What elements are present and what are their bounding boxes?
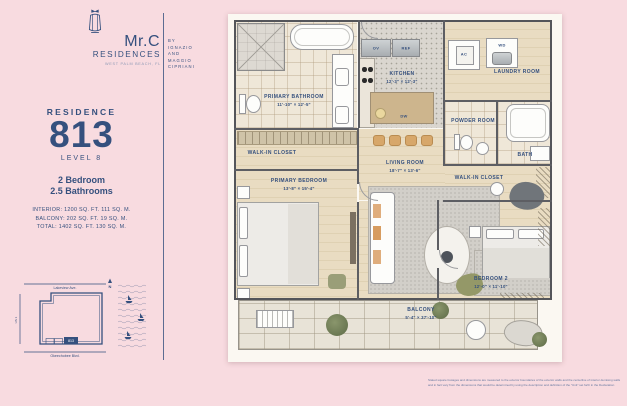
label-walkin-right: WALK-IN CLOSET [454,175,504,182]
sailboat-icon [125,295,145,339]
residence-number: 813 [0,114,163,156]
label-living: LIVING ROOM 18'-7" × 13'-6" [355,160,455,173]
north-label: N [109,284,112,289]
label-bedroom-2: BEDROOM 2 12'-0" × 11'-10" [451,276,531,289]
brand-byline: BY IGNAZIO AND MAGGIO CIPRIANI [168,38,195,71]
street-left-label: US 1 [14,316,18,323]
street-top-label: Lakeview Ave. [54,286,77,290]
byline-line: MAGGIO [168,58,195,65]
north-arrow-icon [108,279,112,284]
legal-disclaimer: Stated square footages and dimensions ar… [428,378,622,388]
label-powder: POWDER ROOM [451,118,495,125]
label-dishwasher: DW [400,114,407,119]
bathroom-count: 2.5 Bathrooms [0,186,163,196]
label-kitchen: KITCHEN 12'-3" × 12'-3" [362,71,442,84]
planter [532,332,547,347]
residence-level: LEVEL 8 [0,155,163,162]
planter [326,314,348,336]
label-walkin-left: WALK-IN CLOSET [246,150,298,157]
label-bath: BATH [505,152,545,159]
label-oven: OV [373,46,379,51]
byline-line: BY [168,38,195,45]
floor-plan: PRIMARY BATHROOM 11'-10" × 12'-5" WALK-I… [228,14,562,362]
bowtie-figure-icon [85,7,105,34]
floorplan-brochure-page: Mr.C RESIDENCES WEST PALM BEACH, FL BY I… [0,0,627,406]
label-primary-bathroom: PRIMARY BATHROOM 11'-10" × 12'-5" [259,94,329,107]
label-laundry: LAUNDRY ROOM [494,69,540,76]
brand-location: WEST PALM BEACH, FL [20,62,161,66]
label-refrigerator: REF [402,46,411,51]
lounge-chair [256,310,294,328]
area-interior: INTERIOR: 1200 SQ. FT. 111 SQ. M. [0,207,163,213]
area-total: TOTAL: 1402 SQ. FT. 130 SQ. M. [0,224,163,230]
byline-line: IGNAZIO [168,45,195,52]
area-balcony: BALCONY: 202 SQ. FT. 19 SQ. M. [0,216,163,222]
brand-name-primary: Mr.C [20,33,160,51]
byline-line: CIPRIANI [168,64,195,71]
label-balcony: BALCONY 5'-4" × 37'-10" [376,307,466,320]
label-washer-dryer: WD [498,43,505,48]
byline-line: AND [168,51,195,58]
unit-marker-label: 813 [68,339,74,343]
site-key-plan: Lakeview Ave. N 813 Okeechobee Blvd. US … [6,274,158,362]
street-bottom-label: Okeechobee Blvd. [50,354,79,358]
balcony-table [466,320,486,340]
brand-name-secondary: RESIDENCES [20,50,161,59]
label-ac: AC [461,52,467,57]
building-outline [40,293,102,344]
label-primary-bedroom: PRIMARY BEDROOM 13'-8" × 15'-4" [239,178,359,191]
bedroom-count: 2 Bedroom [0,175,163,185]
vertical-divider [163,13,164,360]
